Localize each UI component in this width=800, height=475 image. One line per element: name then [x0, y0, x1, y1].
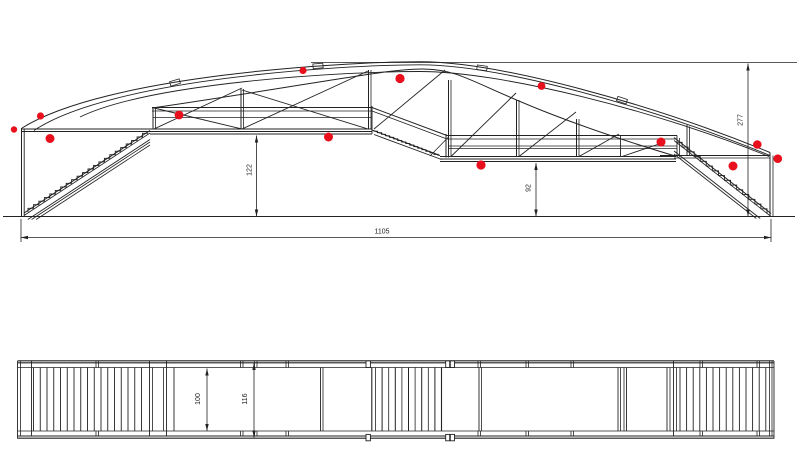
svg-text:277: 277 — [738, 114, 745, 126]
svg-text:100: 100 — [195, 393, 202, 405]
svg-text:122: 122 — [247, 164, 254, 176]
svg-text:92: 92 — [526, 184, 533, 192]
svg-text:1105: 1105 — [374, 229, 389, 236]
svg-text:116: 116 — [242, 393, 249, 404]
